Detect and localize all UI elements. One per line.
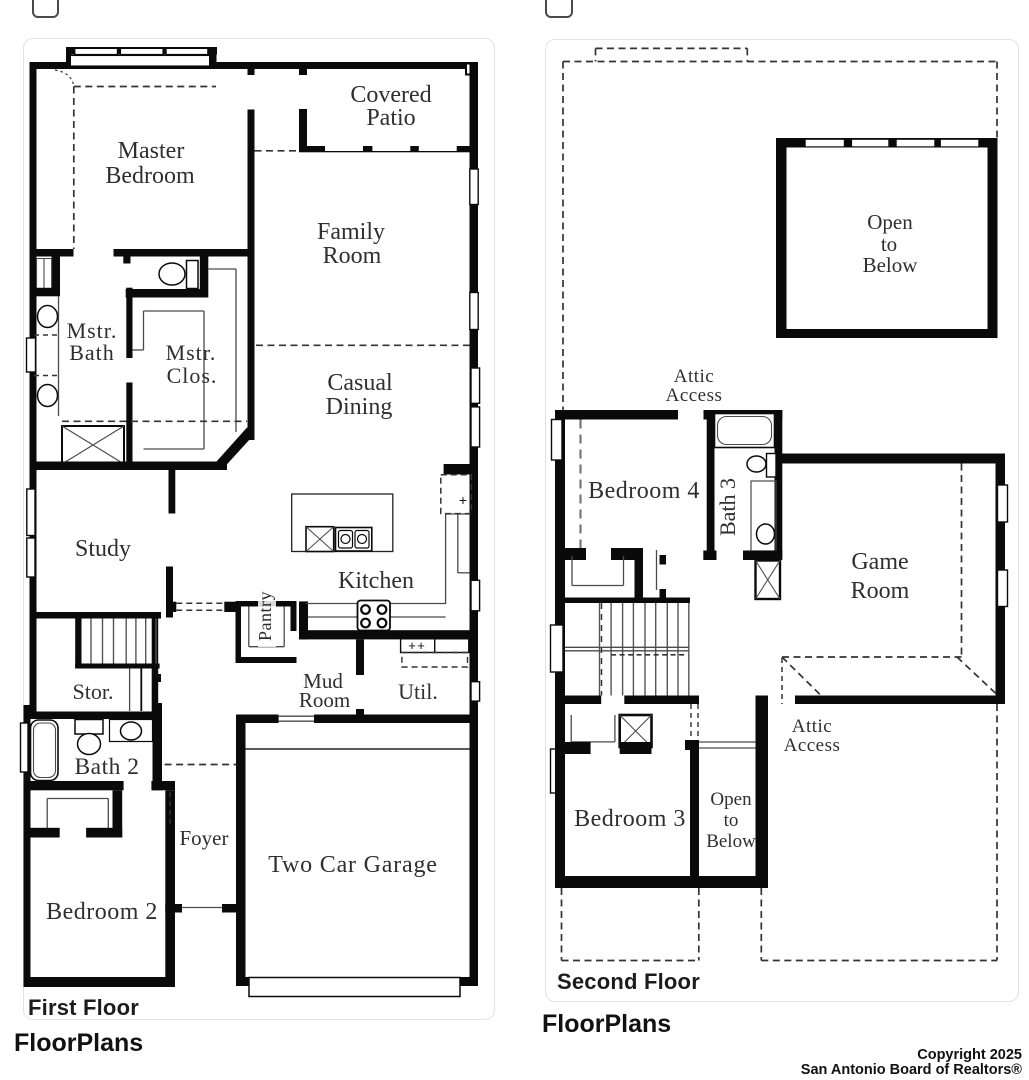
svg-text:Bedroom: Bedroom [105, 163, 195, 189]
svg-text:Family: Family [317, 219, 385, 245]
svg-text:Room: Room [323, 243, 382, 269]
svg-text:Mstr.: Mstr. [166, 340, 217, 365]
svg-text:+: + [459, 492, 467, 508]
svg-text:+: + [417, 638, 425, 653]
svg-text:Master: Master [118, 138, 185, 164]
svg-text:Game: Game [851, 549, 908, 575]
svg-text:Bath 2: Bath 2 [74, 754, 139, 780]
svg-text:Stor.: Stor. [73, 679, 114, 704]
svg-text:Access: Access [784, 735, 841, 756]
svg-text:Open: Open [710, 789, 752, 810]
svg-text:Below: Below [863, 253, 919, 277]
svg-text:Kitchen: Kitchen [338, 568, 414, 594]
svg-text:Attic: Attic [674, 366, 715, 387]
svg-text:Room: Room [299, 688, 350, 712]
svg-text:Two Car Garage: Two Car Garage [268, 852, 437, 878]
svg-text:Dining: Dining [326, 394, 393, 420]
svg-text:Bath: Bath [69, 340, 115, 365]
svg-text:Pantry: Pantry [255, 591, 275, 641]
svg-text:Room: Room [851, 578, 910, 604]
svg-text:Casual: Casual [327, 370, 393, 396]
svg-text:Clos.: Clos. [167, 363, 218, 388]
svg-text:Attic: Attic [792, 716, 833, 737]
svg-text:Bedroom 4: Bedroom 4 [588, 478, 700, 504]
svg-text:Bedroom 2: Bedroom 2 [46, 899, 158, 925]
svg-text:Bath 3: Bath 3 [715, 478, 740, 536]
svg-text:Access: Access [666, 385, 723, 406]
svg-text:Patio: Patio [366, 105, 415, 131]
svg-text:Foyer: Foyer [180, 826, 229, 850]
svg-text:to: to [724, 810, 739, 831]
svg-text:+: + [408, 638, 416, 653]
svg-text:Bedroom 3: Bedroom 3 [574, 806, 686, 832]
svg-text:Util.: Util. [398, 679, 438, 704]
svg-text:Below: Below [706, 831, 756, 852]
svg-text:Open: Open [867, 210, 913, 234]
svg-text:Study: Study [75, 536, 131, 562]
